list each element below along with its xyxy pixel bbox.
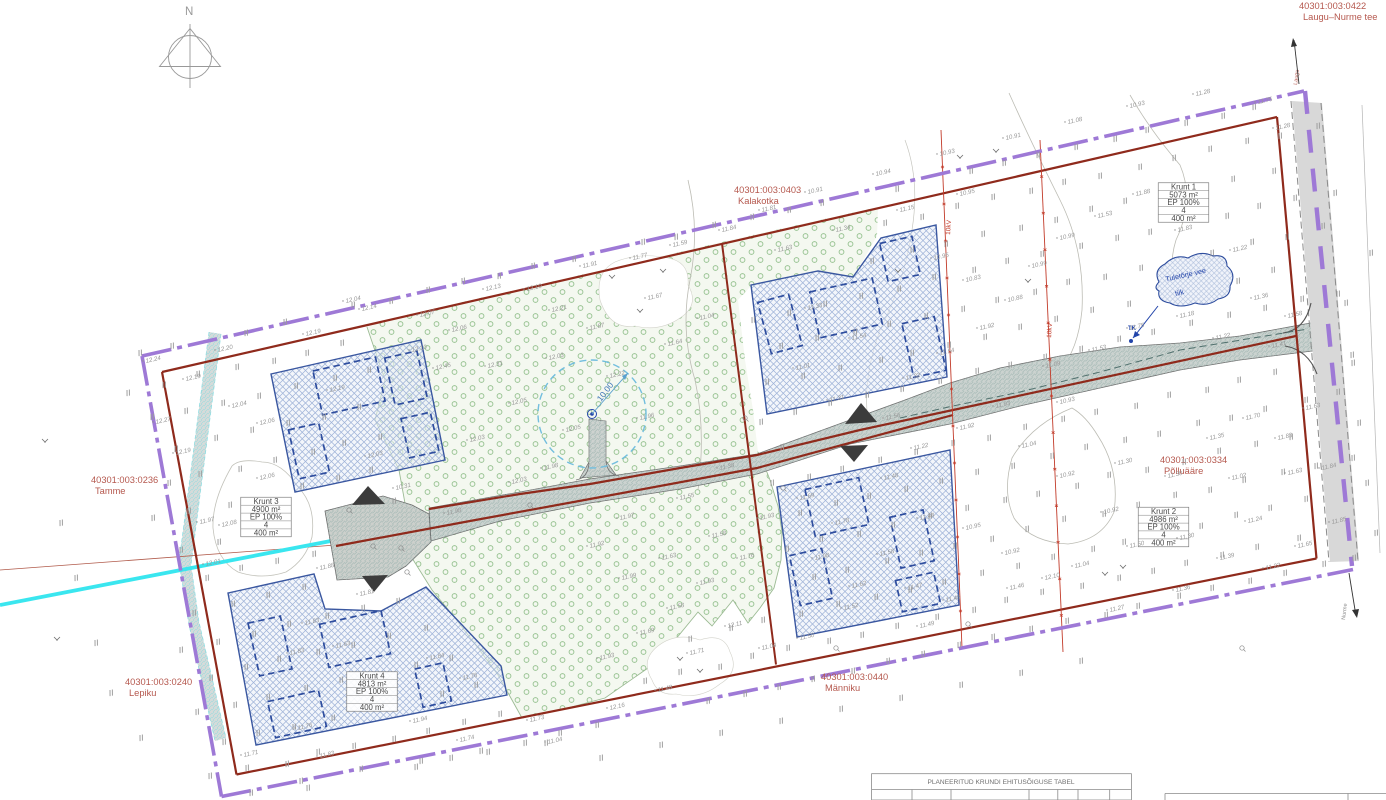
- svg-text:PLANEERITUD KRUNDI EHITUSÕIGUS: PLANEERITUD KRUNDI EHITUSÕIGUSE TABEL: [927, 777, 1074, 786]
- svg-text:40301:003:0422: 40301:003:0422: [1299, 1, 1366, 11]
- svg-text:N: N: [185, 6, 193, 18]
- svg-text:400 m²: 400 m²: [360, 703, 385, 712]
- svg-text:Laugu–Nurme tee: Laugu–Nurme tee: [1303, 12, 1377, 22]
- svg-text:40301:003:0236: 40301:003:0236: [91, 475, 158, 485]
- svg-text:400 m²: 400 m²: [254, 529, 279, 538]
- svg-text:40301:003:0403: 40301:003:0403: [734, 185, 801, 195]
- svg-text:400 m²: 400 m²: [1171, 214, 1196, 223]
- svg-text:Männiku: Männiku: [825, 683, 860, 693]
- svg-text:40301:003:0240: 40301:003:0240: [125, 677, 192, 687]
- svg-text:10kV: 10kV: [1046, 322, 1054, 338]
- svg-text:400 m²: 400 m²: [1151, 539, 1176, 548]
- svg-text:Tamme: Tamme: [95, 486, 125, 496]
- svg-text:10kV: 10kV: [945, 219, 953, 235]
- svg-text:40301:003:0334: 40301:003:0334: [1160, 455, 1227, 465]
- svg-text:Lepiku: Lepiku: [129, 688, 156, 698]
